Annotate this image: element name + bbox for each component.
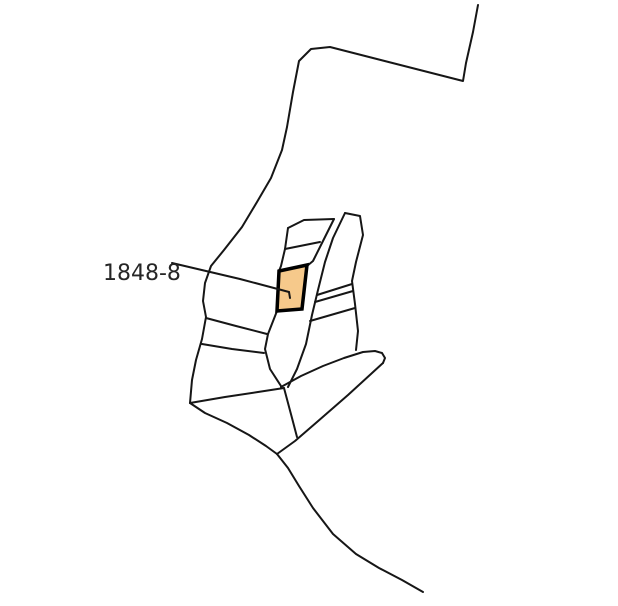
- leader-line-layer: [172, 263, 290, 298]
- east-parcel-boundary: [345, 213, 363, 350]
- west-divider-lower: [202, 344, 264, 353]
- label-leader-hook: [289, 292, 290, 298]
- south-cross-line: [190, 388, 284, 403]
- label-leader-line: [172, 263, 289, 292]
- north-stack-top-edge: [288, 219, 334, 228]
- road-neck: [284, 388, 297, 437]
- west-divider-upper: [206, 318, 267, 334]
- boundary-lines-layer: [190, 5, 478, 592]
- east-divider-c: [310, 308, 355, 321]
- road-strip-left-lower: [265, 311, 281, 386]
- parcel-map: 1848-8: [0, 0, 618, 606]
- parcel-label: 1848-8: [103, 261, 181, 286]
- south-tail-curve: [277, 454, 423, 592]
- outer-boundary-north-west: [190, 5, 478, 403]
- highlighted-parcel-1848-8[interactable]: [277, 265, 307, 311]
- east-divider-b: [315, 291, 353, 302]
- southwest-curve: [190, 403, 277, 454]
- parcel-map-canvas: 1848-8: [0, 0, 618, 606]
- north-stack-divider: [285, 242, 320, 249]
